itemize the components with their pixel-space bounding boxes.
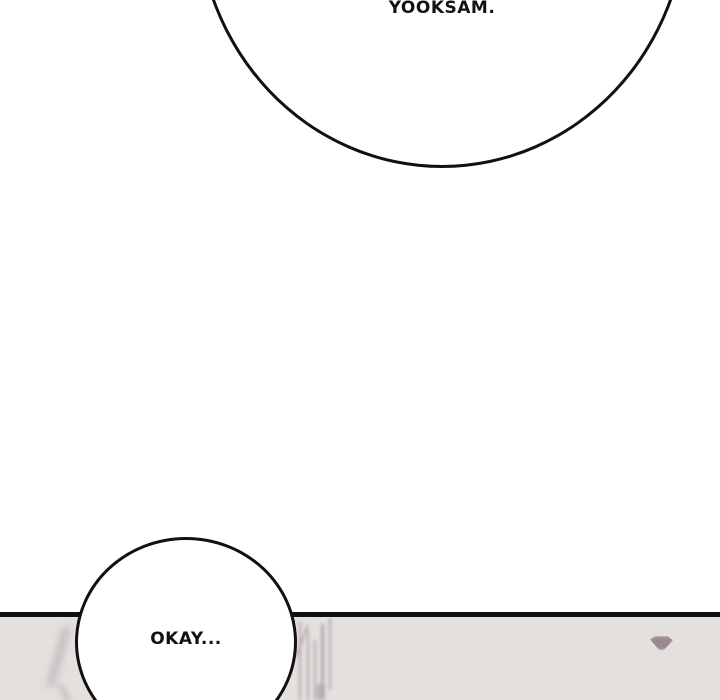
blurred-sketch-lines [293, 616, 345, 700]
speech-bubble-bottom-text: OKAY... [75, 630, 297, 649]
speech-bubble-top [196, 0, 688, 168]
sketch-stroke [314, 640, 316, 700]
sketch-stroke [299, 622, 301, 700]
speech-bubble-bottom [75, 537, 297, 700]
sketch-stroke [317, 684, 325, 700]
sketch-stroke [329, 618, 331, 690]
webtoon-panel: YOOKSAM. OKAY... [0, 0, 720, 700]
sketch-stroke [307, 630, 309, 700]
speech-bubble-top-text: YOOKSAM. [196, 0, 688, 18]
